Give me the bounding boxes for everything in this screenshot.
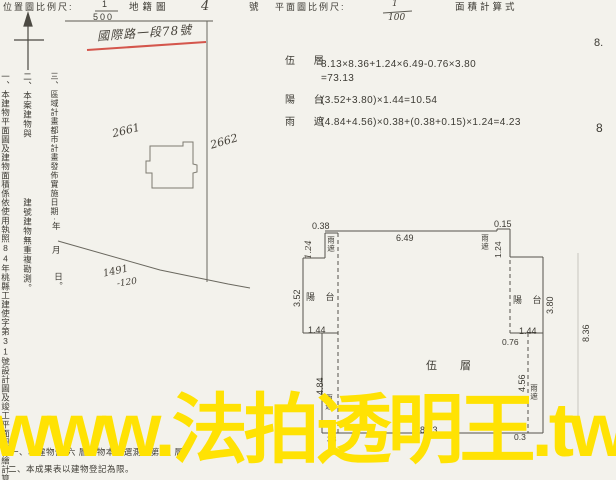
side-note-2-prefix: 二、本案建物與 <box>23 72 32 142</box>
dim-top: 6.49 <box>396 234 414 243</box>
plan-scale-label: 平面圖比例尺: <box>275 3 346 12</box>
room-label: 伍 層 <box>426 361 481 372</box>
dim-balcony-left-height: 3.52 <box>293 289 302 307</box>
dim-balcony-right-height: 3.80 <box>546 296 555 314</box>
eave-label-top-left: 雨遮 <box>327 236 335 253</box>
dim-top-right: 0.15 <box>494 220 512 229</box>
stamp-underline <box>87 42 206 50</box>
cadastral-map-number: 4 <box>201 0 209 13</box>
dim-eave-left-length: 1.24 <box>305 240 314 259</box>
balcony-label-left: 陽 台 <box>306 293 339 302</box>
edge-fragment-bottom: 8 <box>596 122 603 134</box>
side-note-2-suffix: 建號建物無重複勘測。 <box>23 198 32 288</box>
balcony-label-right: 陽 台 <box>513 296 546 305</box>
location-scale-numerator: 1 <box>102 0 107 9</box>
road-boundary-line <box>58 241 250 288</box>
cadastral-map-label: 地籍圖 <box>129 3 170 13</box>
location-scale-label: 位置圖比例尺: <box>3 3 74 12</box>
plan-scale-denominator: 100 <box>388 14 405 23</box>
location-scale-denominator: 500 <box>93 13 114 22</box>
dim-overall-right: 8.36 <box>582 324 591 342</box>
survey-document-page: 位置圖比例尺: 1 500 地籍圖 4 號 平面圖比例尺: 1 100 面積計算… <box>0 0 616 480</box>
header-fraction-bars <box>65 11 412 21</box>
dim-eave-right-length: 1.24 <box>494 241 503 258</box>
side-note-3-year: 年 <box>52 222 61 231</box>
area-formula-title: 面積計算式 <box>455 3 518 13</box>
north-arrow-icon <box>14 13 44 70</box>
side-note-3: 三、區域計畫都市計畫發佈實施日期: <box>50 72 58 222</box>
dim-top-left: 0.38 <box>312 222 330 231</box>
dim-balcony-right-width: 1.44 <box>519 327 537 336</box>
calc-row2-expression: (3.52+3.80)×1.44=10.54 <box>321 96 437 106</box>
calc-row3-expression: (4.84+4.56)×0.38+(0.38+0.15)×1.24=4.23 <box>321 118 521 128</box>
side-note-3-day: 日。 <box>54 272 63 291</box>
watermark-text: www.法拍透明王.tw <box>0 391 616 471</box>
eave-label-top-right: 雨遮 <box>481 234 489 251</box>
plan-scale-numerator: 1 <box>392 0 398 9</box>
cadastral-number-suffix: 號 <box>249 3 259 13</box>
calc-row1-expression: 8.13×8.36+1.24×6.49-0.76×3.80 <box>321 60 476 70</box>
side-note-3-month: 月 <box>52 246 61 255</box>
dim-balcony-left-width: 1.44 <box>308 326 326 335</box>
dim-right-inset: 0.76 <box>502 338 519 347</box>
building-footprint <box>146 142 197 188</box>
calc-row1-result: =73.13 <box>321 74 354 84</box>
edge-fragment-top: 8. <box>594 38 603 49</box>
